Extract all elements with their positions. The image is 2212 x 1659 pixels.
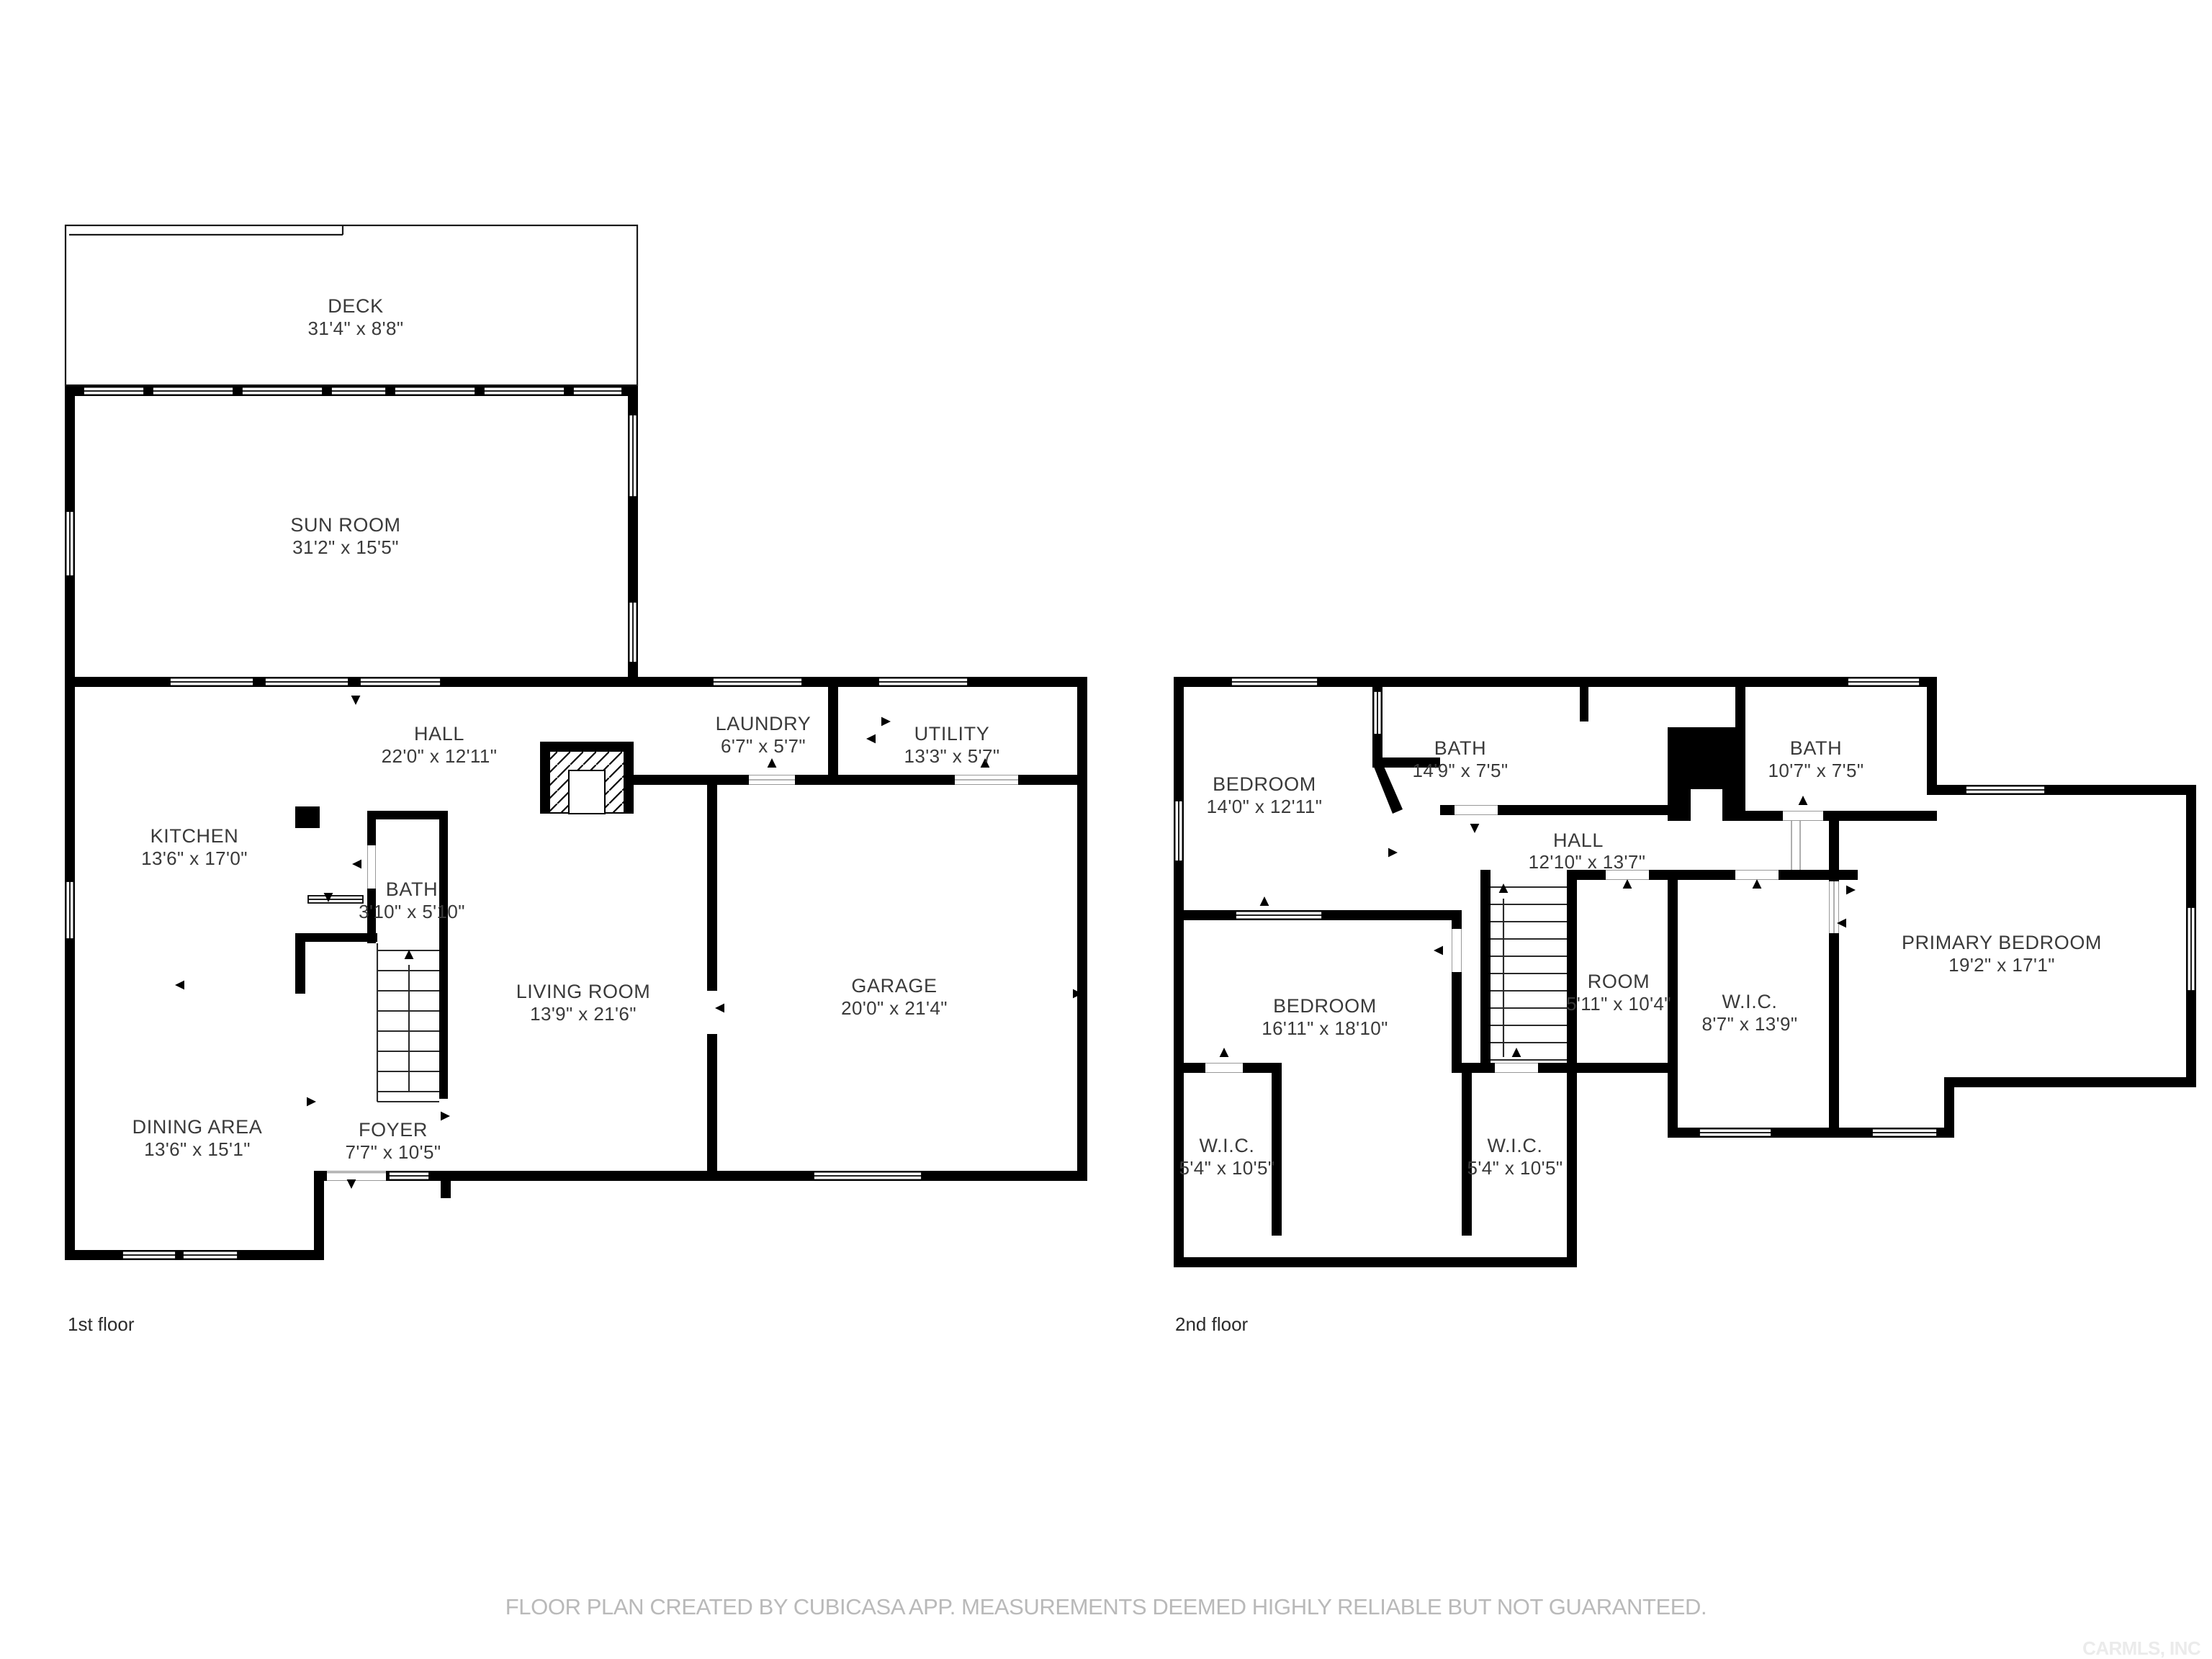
- watermark-text: CARMLS, INC: [2082, 1637, 2201, 1659]
- room-name: KITCHEN: [150, 825, 239, 847]
- room-dims: 13'3" x 5'7": [904, 745, 1000, 767]
- floor-plan-canvas: DECK 31'4" x 8'8" SUN ROOM 31'2" x 15'5"…: [0, 0, 2212, 1659]
- room-dims: 5'11" x 10'4": [1566, 993, 1671, 1015]
- room-dims: 5'4" x 10'5": [1179, 1157, 1275, 1179]
- second-floor-caption: 2nd floor: [1175, 1313, 1249, 1335]
- room-label-wic-left: W.I.C. 5'4" x 10'5": [1179, 1135, 1275, 1179]
- room-dims: 14'9" x 7'5": [1413, 760, 1509, 781]
- room-dims: 14'0" x 12'11": [1207, 796, 1323, 817]
- fireplace: [540, 742, 634, 814]
- room-name: UTILITY: [914, 723, 990, 745]
- room-name: GARAGE: [851, 975, 937, 997]
- room-name: HALL: [414, 723, 464, 745]
- room-name: BEDROOM: [1213, 773, 1316, 795]
- room-name: DECK: [328, 295, 383, 317]
- room-name: W.I.C.: [1722, 991, 1777, 1012]
- room-dims: 22'0" x 12'11": [382, 745, 498, 767]
- room-label-garage: GARAGE 20'0" x 21'4": [841, 975, 948, 1019]
- room-label-sun-room: SUN ROOM 31'2" x 15'5": [290, 514, 400, 558]
- room-dims: 6'7" x 5'7": [721, 735, 806, 757]
- room-label-bedroom-front: BEDROOM 14'0" x 12'11": [1207, 773, 1323, 817]
- room-label-room: ROOM 5'11" x 10'4": [1566, 971, 1671, 1015]
- room-name: PRIMARY BEDROOM: [1902, 932, 2102, 953]
- room-label-dining-area: DINING AREA 13'6" x 15'1": [132, 1116, 263, 1160]
- room-name: BEDROOM: [1273, 995, 1377, 1017]
- room-dims: 5'4" x 10'5": [1467, 1157, 1563, 1179]
- room-name: LIVING ROOM: [516, 981, 651, 1002]
- room-label-kitchen: KITCHEN 13'6" x 17'0": [141, 825, 248, 869]
- room-label-bath-main-2f: BATH 14'9" x 7'5": [1413, 737, 1509, 781]
- room-dims: 12'10" x 13'7": [1529, 851, 1646, 873]
- room-dims: 31'4" x 8'8": [308, 318, 404, 339]
- room-dims: 13'6" x 17'0": [141, 848, 248, 869]
- room-name: BATH: [386, 878, 438, 900]
- room-dims: 3'10" x 5'10": [359, 901, 465, 922]
- room-label-primary-bedroom: PRIMARY BEDROOM 19'2" x 17'1": [1902, 932, 2102, 976]
- kitchen-island: [295, 806, 320, 828]
- room-label-laundry: LAUNDRY 6'7" x 5'7": [716, 713, 811, 757]
- room-dims: 13'6" x 15'1": [144, 1138, 251, 1160]
- room-dims: 19'2" x 17'1": [1948, 954, 2055, 976]
- room-name: DINING AREA: [132, 1116, 263, 1138]
- room-label-wic-primary: W.I.C. 8'7" x 13'9": [1702, 991, 1798, 1035]
- disclaimer-text: FLOOR PLAN CREATED BY CUBICASA APP. MEAS…: [505, 1594, 1707, 1619]
- room-label-bath-second-2f: BATH 10'7" x 7'5": [1768, 737, 1864, 781]
- room-name: SUN ROOM: [290, 514, 400, 536]
- room-dims: 16'11" x 18'10": [1262, 1017, 1388, 1039]
- room-dims: 20'0" x 21'4": [841, 997, 948, 1019]
- room-dims: 10'7" x 7'5": [1768, 760, 1864, 781]
- room-label-bedroom-rear: BEDROOM 16'11" x 18'10": [1262, 995, 1388, 1039]
- second-floor-plan: BEDROOM 14'0" x 12'11" BATH 14'9" x 7'5"…: [1174, 677, 2196, 1335]
- room-dims: 31'2" x 15'5": [292, 536, 399, 558]
- room-dims: 8'7" x 13'9": [1702, 1013, 1798, 1035]
- room-name: ROOM: [1588, 971, 1650, 992]
- room-label-foyer: FOYER 7'7" x 10'5": [346, 1119, 441, 1163]
- room-label-hall-1f: HALL 22'0" x 12'11": [382, 723, 498, 767]
- staircase-first-floor: [377, 943, 439, 1102]
- room-name: HALL: [1553, 829, 1604, 851]
- room-dims: 13'9" x 21'6": [530, 1003, 637, 1025]
- room-name: FOYER: [359, 1119, 428, 1141]
- plumbing-wall-block: [1668, 727, 1745, 821]
- room-dims: 7'7" x 10'5": [346, 1141, 441, 1163]
- room-label-hall-2f: HALL 12'10" x 13'7": [1529, 829, 1646, 873]
- room-name: W.I.C.: [1199, 1135, 1254, 1156]
- first-floor-plan: DECK 31'4" x 8'8" SUN ROOM 31'2" x 15'5"…: [65, 225, 1087, 1335]
- room-label-utility: UTILITY 13'3" x 5'7": [904, 723, 1000, 767]
- room-name: BATH: [1434, 737, 1486, 759]
- room-label-living-room: LIVING ROOM 13'9" x 21'6": [516, 981, 651, 1025]
- room-name: LAUNDRY: [716, 713, 811, 734]
- room-name: BATH: [1790, 737, 1842, 759]
- room-label-deck: DECK 31'4" x 8'8": [308, 295, 404, 339]
- first-floor-caption: 1st floor: [68, 1313, 135, 1335]
- room-label-wic-right: W.I.C. 5'4" x 10'5": [1467, 1135, 1563, 1179]
- staircase-second-floor: [1491, 884, 1567, 1060]
- room-name: W.I.C.: [1487, 1135, 1542, 1156]
